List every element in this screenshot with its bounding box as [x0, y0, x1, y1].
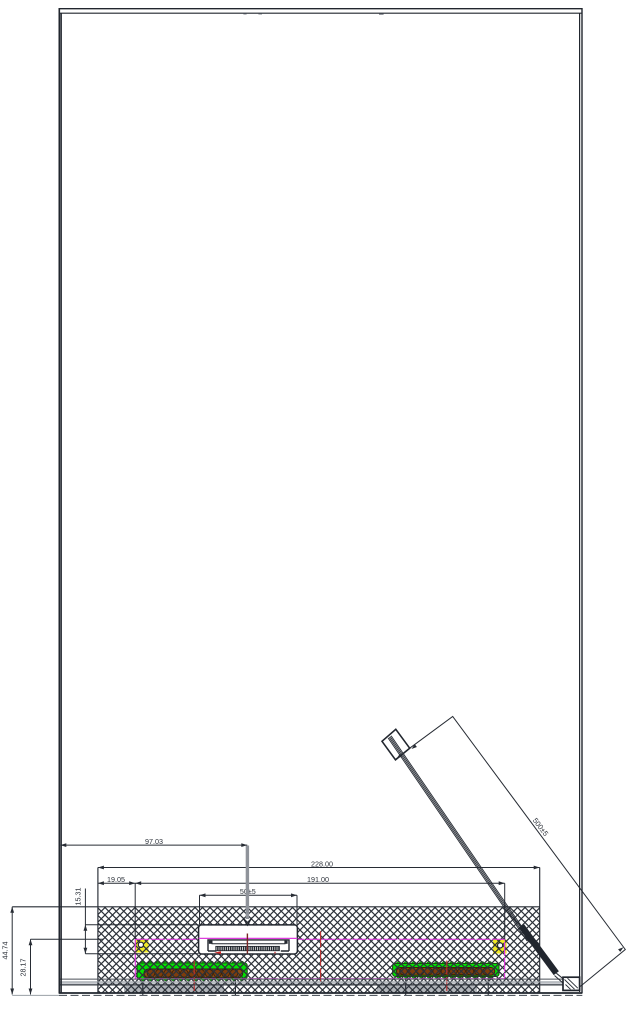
svg-text:228.00: 228.00: [311, 859, 333, 868]
svg-text:97.03: 97.03: [145, 837, 163, 846]
svg-text:19.05: 19.05: [107, 875, 125, 884]
svg-text:28.17: 28.17: [19, 959, 28, 977]
svg-text:44.74: 44.74: [0, 942, 9, 960]
svg-text:15.31: 15.31: [73, 888, 82, 906]
svg-text:191.00: 191.00: [307, 875, 329, 884]
